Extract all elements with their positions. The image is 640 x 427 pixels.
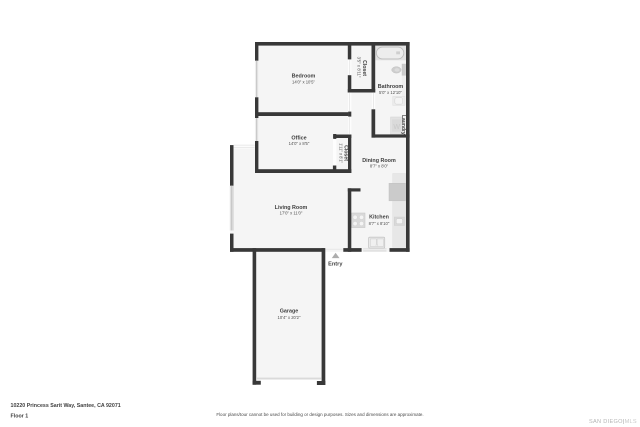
svg-text:W: W bbox=[393, 124, 400, 131]
svg-text:Floor plans/tour cannot be use: Floor plans/tour cannot be used for buil… bbox=[216, 412, 423, 417]
svg-text:Kitchen: Kitchen bbox=[369, 215, 389, 221]
svg-text:SAN DIEGO|MLS: SAN DIEGO|MLS bbox=[589, 419, 637, 425]
svg-text:10'4" x 20'2": 10'4" x 20'2" bbox=[278, 315, 301, 320]
svg-text:3'5" x 8'11": 3'5" x 8'11" bbox=[356, 57, 361, 78]
svg-text:Entry: Entry bbox=[328, 261, 343, 267]
svg-text:8'7" x 8'0": 8'7" x 8'0" bbox=[370, 164, 389, 169]
svg-text:14'0" x 10'5": 14'0" x 10'5" bbox=[292, 79, 315, 84]
svg-text:8'7" x 8'10": 8'7" x 8'10" bbox=[369, 221, 390, 226]
svg-text:Garage: Garage bbox=[280, 309, 299, 315]
svg-text:Laundry: Laundry bbox=[400, 115, 406, 135]
svg-text:14'0" x 8'5": 14'0" x 8'5" bbox=[289, 141, 310, 146]
svg-text:Floor 1: Floor 1 bbox=[11, 413, 29, 419]
svg-text:17'0" x 11'0": 17'0" x 11'0" bbox=[280, 211, 303, 216]
svg-text:10220 Princess Sarit Way, Sant: 10220 Princess Sarit Way, Santee, CA 920… bbox=[11, 403, 121, 409]
svg-text:1'11" x 8'1": 1'11" x 8'1" bbox=[339, 143, 344, 163]
svg-text:5'0" x 12'10": 5'0" x 12'10" bbox=[379, 90, 402, 95]
